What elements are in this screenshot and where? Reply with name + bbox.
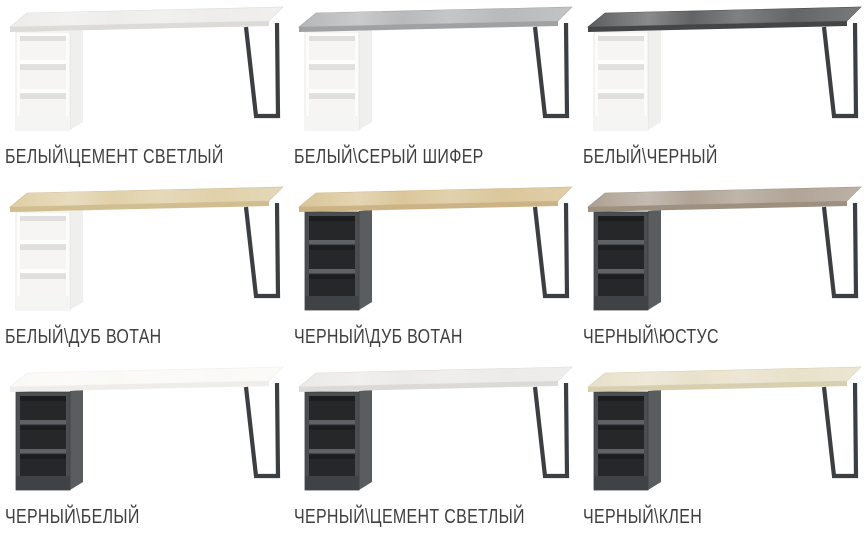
shelf-board-2-edge (20, 453, 66, 454)
compartment-shadow-3 (598, 94, 644, 99)
desk-leg (246, 383, 278, 476)
compartment-shadow-2 (309, 245, 355, 250)
desk-variant-label-text: БЕЛЫЙ\ДУБ ВОТАН (5, 324, 162, 350)
desk-variant-label: ЧЕРНЫЙ\БЕЛЫЙ (0, 504, 289, 532)
shelf-board-2-edge (309, 453, 355, 454)
desk-card[interactable]: БЕЛЫЙ\ЦЕМЕНТ СВЕТЛЫЙ (0, 0, 289, 180)
desk-leg (824, 203, 856, 296)
compartment-shadow-2 (598, 425, 644, 430)
shelf-board-1-edge (20, 424, 66, 425)
desk-variant-label-text: ЧЕРНЫЙ\ЦЕМЕНТ СВЕТЛЫЙ (294, 504, 525, 530)
compartment-shadow-3 (20, 454, 66, 459)
cabinet-side-panel (359, 30, 372, 130)
compartment-shadow-2 (598, 65, 644, 70)
compartment-shadow-3 (309, 454, 355, 459)
cabinet-side-panel (648, 390, 661, 490)
desk-variant-label: БЕЛЫЙ\ЦЕМЕНТ СВЕТЛЫЙ (0, 144, 289, 172)
desk-variant-label: БЕЛЫЙ\ДУБ ВОТАН (0, 324, 289, 352)
desk-leg (246, 23, 278, 116)
shelf-board-2-edge (598, 453, 644, 454)
compartment-shadow-3 (309, 94, 355, 99)
cabinet-side-panel (359, 210, 372, 310)
shelf-board-2-edge (309, 93, 355, 94)
compartment-shadow-2 (20, 425, 66, 430)
cabinet-interior (20, 216, 66, 296)
compartment-shadow-1 (20, 396, 66, 401)
desk-variant-label: ЧЕРНЫЙ\ЮСТУС (578, 324, 867, 352)
desk-variant-label: БЕЛЫЙ\СЕРЫЙ ШИФЕР (289, 144, 578, 172)
desk-image (0, 0, 289, 142)
desk-leg (246, 203, 278, 296)
cabinet-interior (309, 36, 355, 116)
shelf-board-1-edge (309, 244, 355, 245)
desk-image (0, 180, 289, 322)
cabinet-interior (20, 396, 66, 476)
compartment-shadow-2 (20, 65, 66, 70)
compartment-shadow-1 (598, 216, 644, 221)
compartment-shadow-1 (20, 216, 66, 221)
desk-variant-label-text: ЧЕРНЫЙ\КЛЕН (583, 504, 702, 530)
cabinet-interior (20, 36, 66, 116)
cabinet-side-panel (648, 30, 661, 130)
desk-card[interactable]: ЧЕРНЫЙ\ЦЕМЕНТ СВЕТЛЫЙ (289, 360, 578, 540)
compartment-shadow-3 (20, 274, 66, 279)
desk-card[interactable]: ЧЕРНЫЙ\БЕЛЫЙ (0, 360, 289, 540)
desk-card[interactable]: БЕЛЫЙ\ДУБ ВОТАН (0, 180, 289, 360)
cabinet-plinth (594, 476, 648, 490)
shelf-board-1-edge (309, 64, 355, 65)
product-grid: БЕЛЫЙ\ЦЕМЕНТ СВЕТЛЫЙ (0, 0, 867, 541)
cabinet-plinth (16, 116, 70, 130)
desk-variant-label-text: ЧЕРНЫЙ\ДУБ ВОТАН (294, 324, 463, 350)
desk-variant-label-text: ЧЕРНЫЙ\ЮСТУС (583, 324, 719, 350)
shelf-board-2-edge (598, 93, 644, 94)
cabinet-plinth (305, 116, 359, 130)
cabinet-side-panel (648, 210, 661, 310)
desk-variant-label: ЧЕРНЫЙ\ДУБ ВОТАН (289, 324, 578, 352)
desk-variant-label-text: БЕЛЫЙ\ЦЕМЕНТ СВЕТЛЫЙ (5, 144, 224, 170)
cabinet-interior (598, 36, 644, 116)
compartment-shadow-1 (598, 396, 644, 401)
desk-image (289, 180, 578, 322)
shelf-board-2-edge (309, 273, 355, 274)
compartment-shadow-1 (20, 36, 66, 41)
compartment-shadow-2 (20, 245, 66, 250)
desk-variant-label-text: ЧЕРНЫЙ\БЕЛЫЙ (5, 504, 140, 530)
desk-variant-label: ЧЕРНЫЙ\КЛЕН (578, 504, 867, 532)
desk-image (289, 360, 578, 502)
desk-leg (535, 383, 567, 476)
shelf-board-2-edge (20, 93, 66, 94)
desk-variant-label: ЧЕРНЫЙ\ЦЕМЕНТ СВЕТЛЫЙ (289, 504, 578, 532)
desk-leg (824, 23, 856, 116)
shelf-board-2-edge (598, 273, 644, 274)
desk-image (578, 180, 867, 322)
desk-image (289, 0, 578, 142)
cabinet-interior (309, 396, 355, 476)
cabinet-interior (309, 216, 355, 296)
compartment-shadow-2 (309, 65, 355, 70)
cabinet-side-panel (70, 30, 83, 130)
desk-leg (824, 383, 856, 476)
cabinet-plinth (305, 476, 359, 490)
compartment-shadow-1 (309, 396, 355, 401)
compartment-shadow-3 (309, 274, 355, 279)
compartment-shadow-1 (309, 216, 355, 221)
cabinet-plinth (594, 116, 648, 130)
cabinet-plinth (305, 296, 359, 310)
cabinet-interior (598, 396, 644, 476)
desk-image (0, 360, 289, 502)
shelf-board-1-edge (309, 424, 355, 425)
cabinet-plinth (16, 476, 70, 490)
desk-card[interactable]: ЧЕРНЫЙ\ЮСТУС (578, 180, 867, 360)
desk-card[interactable]: ЧЕРНЫЙ\ДУБ ВОТАН (289, 180, 578, 360)
cabinet-interior (598, 216, 644, 296)
desk-card[interactable]: БЕЛЫЙ\ЧЕРНЫЙ (578, 0, 867, 180)
cabinet-side-panel (70, 210, 83, 310)
cabinet-plinth (16, 296, 70, 310)
shelf-board-1-edge (598, 64, 644, 65)
cabinet-side-panel (70, 390, 83, 490)
desk-leg (535, 203, 567, 296)
compartment-shadow-3 (598, 274, 644, 279)
shelf-board-2-edge (20, 273, 66, 274)
compartment-shadow-1 (309, 36, 355, 41)
cabinet-plinth (594, 296, 648, 310)
desk-image (578, 360, 867, 502)
compartment-shadow-2 (598, 245, 644, 250)
desk-variant-label-text: БЕЛЫЙ\СЕРЫЙ ШИФЕР (294, 144, 484, 170)
shelf-board-1-edge (598, 244, 644, 245)
desk-variant-label-text: БЕЛЫЙ\ЧЕРНЫЙ (583, 144, 718, 170)
shelf-board-1-edge (20, 64, 66, 65)
compartment-shadow-3 (598, 454, 644, 459)
compartment-shadow-1 (598, 36, 644, 41)
compartment-shadow-2 (309, 425, 355, 430)
desk-card[interactable]: ЧЕРНЫЙ\КЛЕН (578, 360, 867, 540)
shelf-board-1-edge (20, 244, 66, 245)
desk-leg (535, 23, 567, 116)
desk-image (578, 0, 867, 142)
desk-card[interactable]: БЕЛЫЙ\СЕРЫЙ ШИФЕР (289, 0, 578, 180)
compartment-shadow-3 (20, 94, 66, 99)
cabinet-side-panel (359, 390, 372, 490)
desk-variant-label: БЕЛЫЙ\ЧЕРНЫЙ (578, 144, 867, 172)
shelf-board-1-edge (598, 424, 644, 425)
